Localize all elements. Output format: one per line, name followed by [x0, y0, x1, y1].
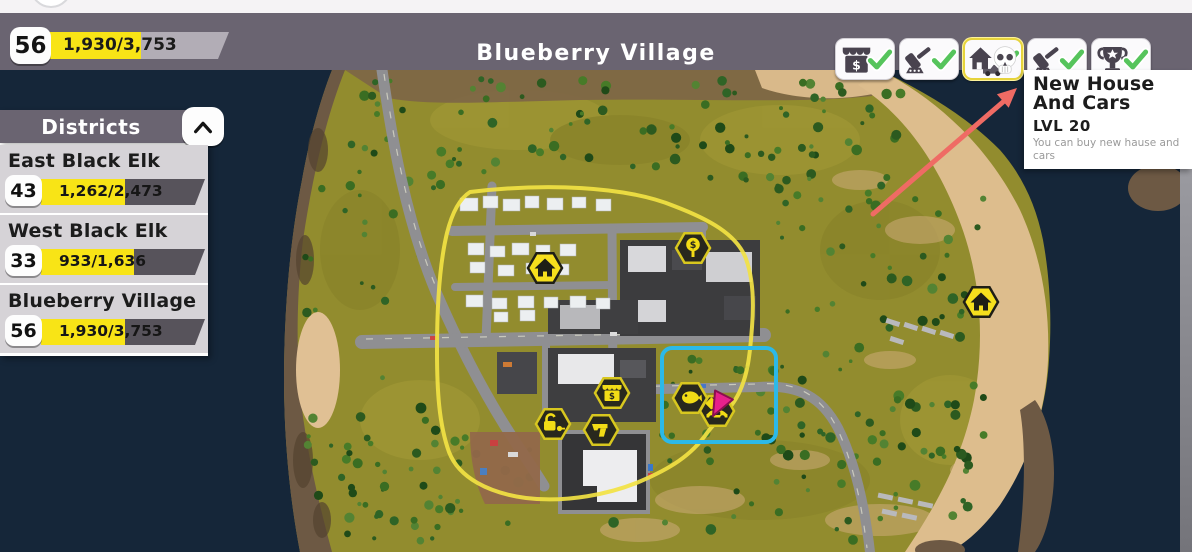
- tooltip-title: New House And Cars: [1033, 75, 1184, 114]
- xp-progress-text: 1,930/3,753: [63, 35, 177, 55]
- district-row[interactable]: Blueberry Village1,930/3,75356: [0, 285, 208, 353]
- districts-list: East Black Elk1,262/2,47343West Black El…: [0, 143, 208, 356]
- screen-edge-strip: [1180, 150, 1192, 552]
- district-name: Blueberry Village: [8, 290, 200, 312]
- district-row[interactable]: East Black Elk1,262/2,47343: [0, 145, 208, 213]
- district-progress-bar: 1,930/3,753: [41, 319, 205, 345]
- district-progress-bar: 933/1,636: [41, 249, 205, 275]
- chevron-up-icon: [192, 119, 214, 135]
- skull-cursor-icon: [973, 28, 1037, 92]
- district-progress-text: 1,262/2,473: [59, 182, 163, 200]
- districts-header: Districts: [0, 110, 196, 143]
- district-name: East Black Elk: [8, 150, 200, 172]
- districts-title: Districts: [41, 115, 140, 139]
- tooltip-level: LVL 20: [1033, 117, 1184, 135]
- top-strip: [0, 0, 1192, 13]
- tooltip-description: You can buy new hause and cars: [1033, 137, 1184, 163]
- check-icon: [865, 45, 895, 75]
- game-screen: $ $ $: [0, 0, 1192, 552]
- house-icon[interactable]: [528, 253, 562, 282]
- district-progress-text: 933/1,636: [59, 252, 146, 270]
- district-progress-bar: 1,262/2,473: [41, 179, 205, 205]
- district-progress-text: 1,930/3,753: [59, 322, 163, 340]
- district-level-badge: 33: [5, 245, 42, 276]
- price-sign-icon[interactable]: [676, 233, 710, 262]
- district-row[interactable]: West Black Elk933/1,63633: [0, 215, 208, 283]
- location-title: Blueberry Village: [476, 41, 716, 66]
- gun-icon[interactable]: [584, 415, 618, 444]
- districts-panel: Districts East Black Elk1,262/2,47343Wes…: [0, 110, 224, 356]
- unlock-key-icon[interactable]: [536, 409, 570, 438]
- market-stall-icon[interactable]: [595, 378, 629, 407]
- collapse-panel-button[interactable]: [182, 107, 224, 146]
- unlock-button-auction[interactable]: [899, 38, 959, 80]
- unlock-button-market[interactable]: [835, 38, 895, 80]
- house-icon[interactable]: [964, 287, 998, 316]
- district-level-badge: 43: [5, 175, 42, 206]
- district-name: West Black Elk: [8, 220, 200, 242]
- player-level-badge: 56: [10, 27, 51, 64]
- district-level-badge: 56: [5, 315, 42, 346]
- left-beach: [296, 312, 340, 428]
- check-icon: [929, 45, 959, 75]
- unlock-tooltip: New House And Cars LVL 20 You can buy ne…: [1024, 70, 1192, 169]
- partial-circle-decoration: [30, 0, 72, 8]
- xp-progress-bar: 1,930/3,753: [49, 32, 229, 59]
